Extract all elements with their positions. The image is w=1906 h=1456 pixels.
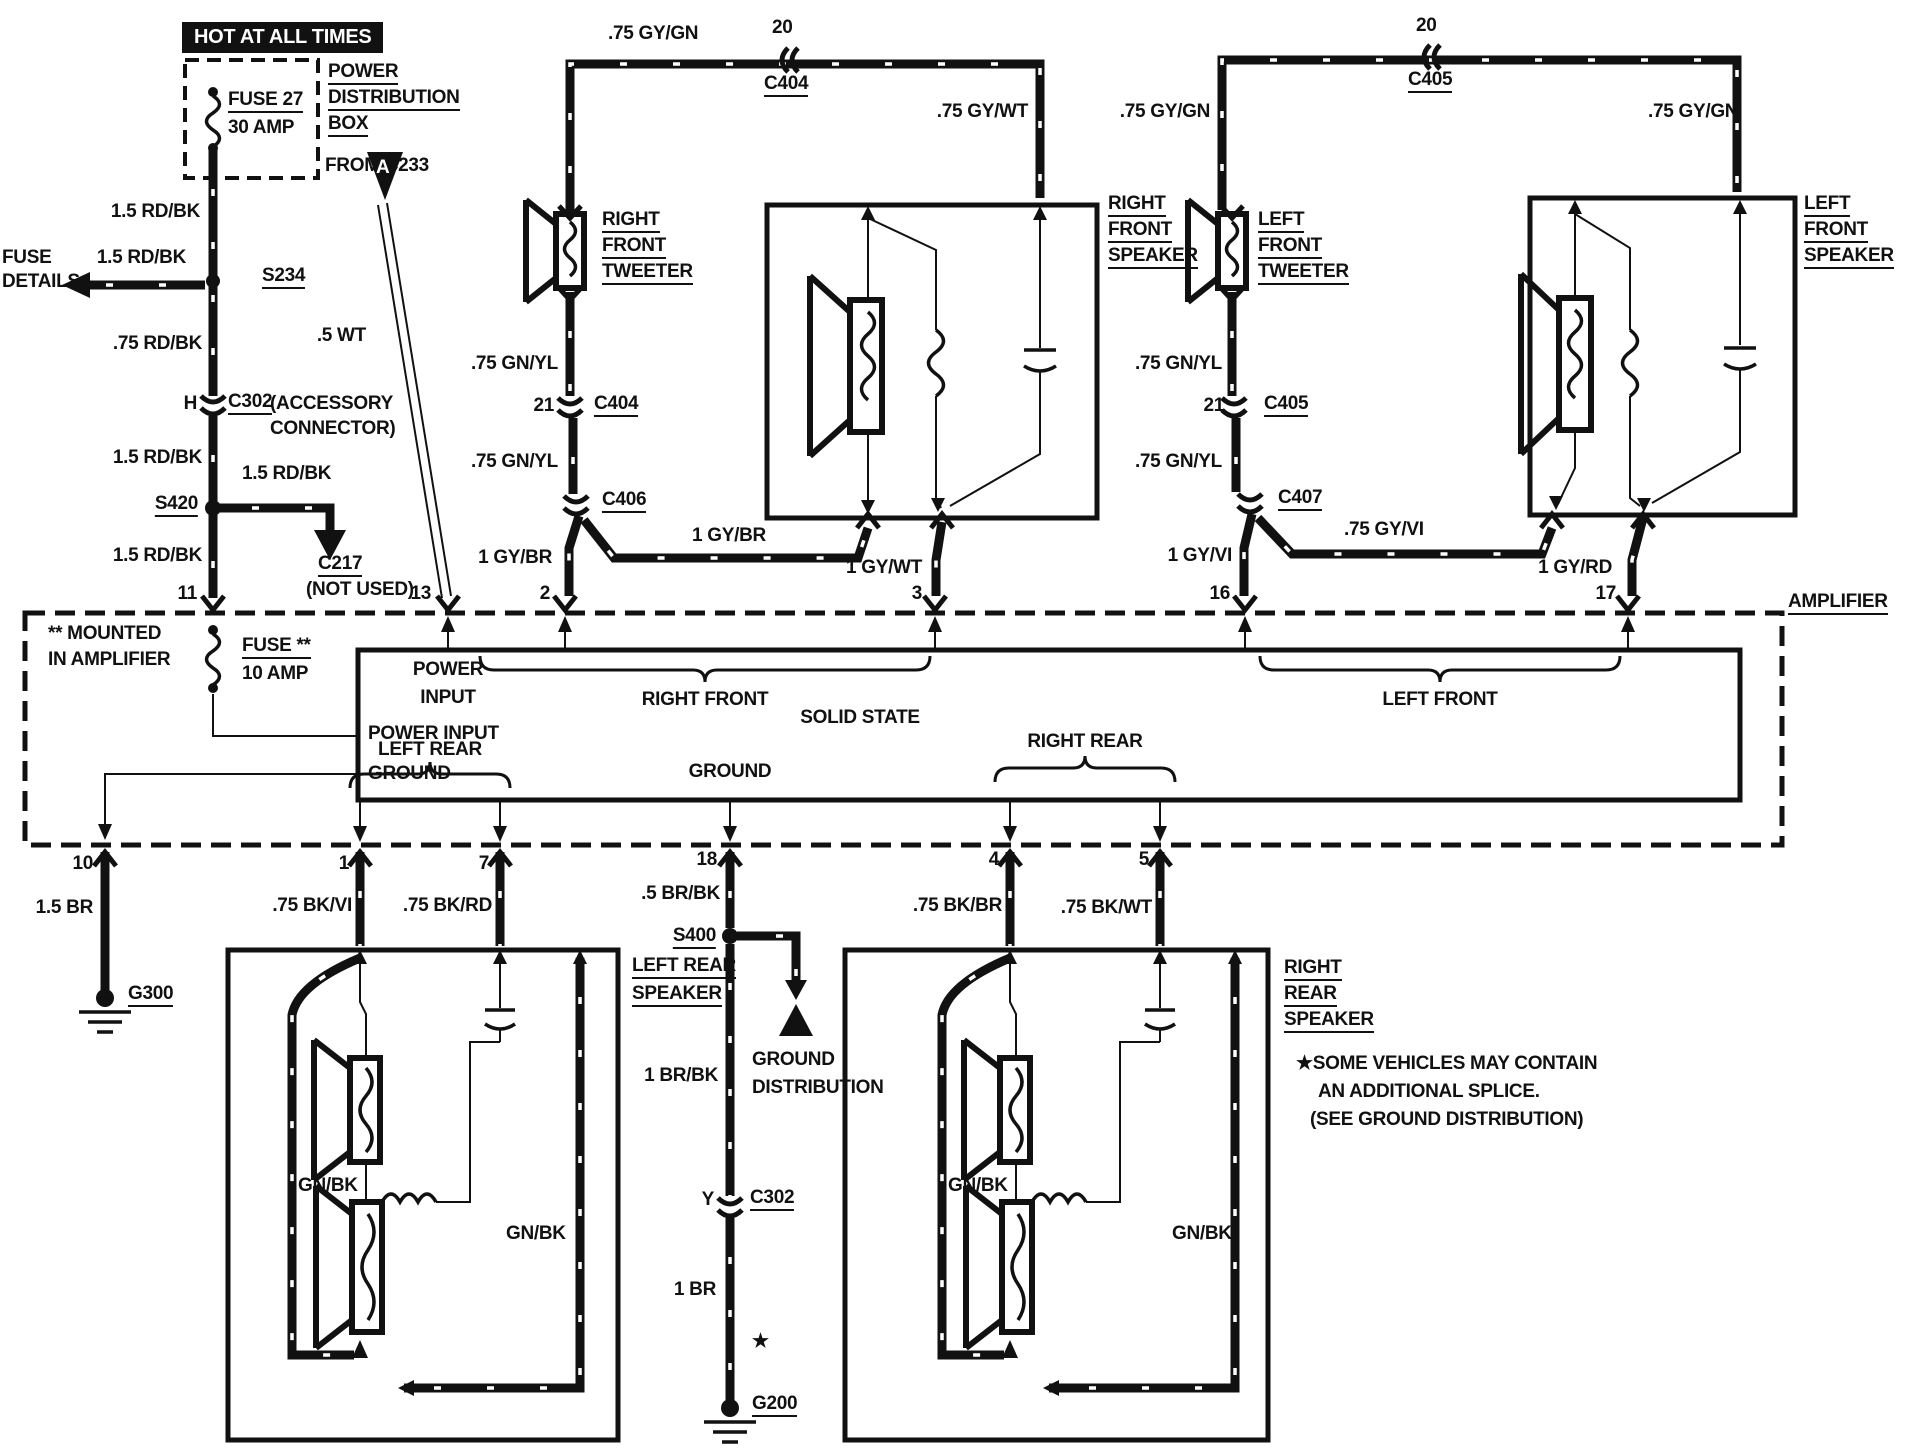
ground-distribution-arrow (785, 980, 807, 1000)
c406-connector-icon (564, 496, 588, 514)
left-front-speaker-box (1530, 198, 1795, 515)
fuse-details-arrow (62, 272, 90, 298)
rr-inductor (1032, 1194, 1086, 1202)
c217-branch-wire (213, 508, 330, 538)
diagram-artwork (0, 0, 1906, 1456)
c407-connector-icon (1238, 494, 1262, 512)
amplifier-fuse-icon (207, 625, 220, 693)
rf-capacitor (1024, 350, 1056, 371)
capacitor-icons (485, 348, 1756, 1029)
lf-inductor (1623, 330, 1638, 396)
wiring-diagram-canvas: HOT AT ALL TIMESFUSE 2730 AMPPOWERDISTRI… (0, 0, 1906, 1456)
left-rear-upper-speaker-icon (314, 1040, 380, 1180)
ground-distribution-triangle (779, 1004, 813, 1036)
c302-connector-icon (201, 396, 225, 414)
left-front-tweeter-icon (1188, 200, 1246, 302)
left-rear-brace (350, 762, 510, 788)
lr-capacitor (485, 1010, 515, 1029)
c217-arrow (314, 530, 346, 560)
c302-y-connector-icon (718, 1198, 742, 1216)
right-rear-brace (995, 756, 1175, 782)
top-wire-right-front (570, 64, 1040, 212)
g300-ground-icon (79, 989, 131, 1032)
lf-capacitor (1724, 348, 1756, 369)
top-wire-left-front (1222, 60, 1737, 210)
amplifier-inner-box (358, 650, 1740, 800)
right-front-tweeter-icon (526, 200, 584, 302)
c404-21-connector-icon (558, 398, 582, 416)
power-distribution-box (185, 60, 318, 178)
lr-inductor (382, 1194, 436, 1202)
thin-lines (105, 203, 1740, 1202)
right-front-speaker-box (767, 205, 1097, 518)
rr-capacitor (1145, 1010, 1175, 1029)
lr-box-right-thick-wire (404, 958, 580, 1388)
right-front-woofer-icon (810, 276, 882, 456)
g200-ground-icon (704, 1399, 756, 1442)
right-rear-upper-speaker-icon (964, 1040, 1030, 1180)
left-rear-lower-speaker-icon (316, 1186, 382, 1348)
c405-21-connector-icon (1222, 398, 1246, 416)
rr-box-right-thick-wire (1049, 958, 1235, 1388)
right-rear-lower-speaker-icon (966, 1186, 1032, 1348)
right-front-brace (480, 656, 930, 682)
connector-icons (201, 45, 1440, 1216)
splice-s420-dot (205, 500, 221, 516)
gybr-branch-wire (584, 520, 868, 558)
braces (350, 656, 1620, 788)
triangle-a-marker (367, 152, 403, 200)
gyvi-branch-wire (1258, 518, 1552, 554)
splice-s400-dot (722, 928, 738, 944)
splice-s234-dot (206, 274, 220, 288)
fuse-27-icon (207, 87, 220, 153)
left-front-brace (1260, 656, 1620, 682)
pin3-wire (936, 522, 942, 596)
rf-inductor (929, 330, 944, 396)
